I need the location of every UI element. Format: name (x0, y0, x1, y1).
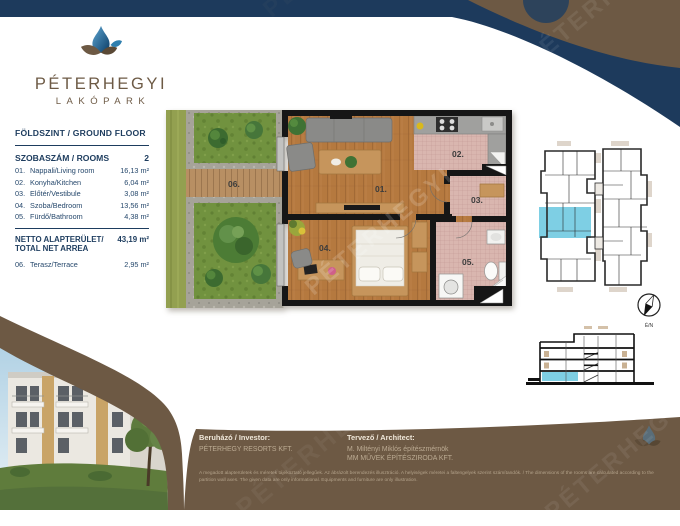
room-name: Szoba/Bedroom (30, 202, 120, 210)
net-area-value: 43,19 m² (117, 235, 149, 254)
ground-line (526, 382, 654, 385)
bathroom-label: 05. (462, 257, 474, 267)
waterdrop-logo-icon (77, 24, 125, 66)
room-row: 03. Előtér/Vestibule 3,08 m² (15, 190, 149, 198)
room-info-panel: FÖLDSZINT / GROUND FLOOR SZOBASZÁM / ROO… (15, 128, 149, 269)
net-area-label-en: TOTAL NET ARREA (15, 244, 88, 253)
terrace-door-sill (277, 137, 284, 171)
architect-name: M. Miltényi Miklós építészmérnök MM MŰVE… (347, 445, 453, 463)
kitchen-label: 02. (452, 149, 464, 159)
rooms-count-value: 2 (144, 153, 149, 163)
living-label: 01. (375, 184, 387, 194)
terrace-row: 06. Terasz/Terrace 2,95 m² (15, 261, 149, 269)
bottom-info-band (184, 417, 680, 510)
room-name: Fürdő/Bathroom (30, 213, 124, 221)
section-highlight (542, 372, 578, 381)
architect-block: Tervező / Architect: M. Miltényi Miklós … (347, 433, 453, 463)
room-name: Terasz/Terrace (30, 261, 124, 269)
disclaimer-text: A megadott alapterületek és méretek tájé… (199, 471, 667, 485)
room-area: 13,56 m² (120, 202, 149, 210)
brand-logo: PÉTERHEGYI LAKÓPARK (28, 24, 174, 107)
footer-drop-watermark-icon (632, 424, 666, 454)
room-number: 02. (15, 179, 30, 187)
bottom-swoosh-band (0, 316, 184, 510)
room-number: 04. (15, 202, 30, 210)
vestibule-label: 03. (471, 195, 483, 205)
room-number: 01. (15, 167, 30, 175)
divider (15, 145, 149, 146)
room-row: 05. Fürdő/Bathroom 4,38 m² (15, 213, 149, 221)
architect-label: Tervező / Architect: (347, 433, 453, 442)
room-name: Konyha/Kitchen (30, 179, 124, 187)
room-row: 02. Konyha/Kitchen 6,04 m² (15, 179, 149, 187)
rooms-count-label: SZOBASZÁM / ROOMS (15, 153, 109, 163)
investor-label: Beruházó / Investor: (199, 433, 293, 442)
room-area: 6,04 m² (124, 179, 149, 187)
room-area: 4,38 m² (124, 213, 149, 221)
net-area-label: NETTO ALAPTERÜLET/ TOTAL NET ARREA (15, 235, 104, 254)
room-area: 2,95 m² (124, 261, 149, 269)
bush (213, 217, 259, 263)
stair-links (595, 183, 603, 249)
room-area: 3,08 m² (124, 190, 149, 198)
terrace-garden: 06. (166, 110, 284, 308)
room-number: 05. (15, 213, 30, 221)
floor-header: FÖLDSZINT / GROUND FLOOR (15, 128, 149, 138)
building-key-plan (533, 141, 653, 295)
net-area-row: NETTO ALAPTERÜLET/ TOTAL NET ARREA 43,19… (15, 235, 149, 254)
room-name: Előtér/Vestibule (30, 190, 124, 198)
room-number: 06. (15, 261, 30, 269)
right-wing-outline (603, 149, 647, 285)
brand-subname: LAKÓPARK (28, 96, 174, 107)
architect-name-line2: MM MŰVEK ÉPÍTÉSZIRODA KFT. (347, 455, 453, 462)
terrace-label: 06. (228, 179, 240, 189)
divider (15, 228, 149, 229)
brand-name: PÉTERHEGYI (28, 75, 174, 94)
investor-name: PÉTERHEGY RESORTS KFT. (199, 445, 293, 454)
room-name: Nappali/Living room (30, 167, 120, 175)
architect-name-line1: M. Miltényi Miklós építészmérnök (347, 446, 448, 453)
bedroom-label: 04. (319, 243, 331, 253)
terrace-door-sill (277, 224, 284, 286)
rooms-count-row: SZOBASZÁM / ROOMS 2 (15, 153, 149, 163)
room-area: 16,13 m² (120, 167, 149, 175)
room-row: 01. Nappali/Living room 16,13 m² (15, 167, 149, 175)
entry-canopy (528, 378, 540, 381)
net-area-label-hu: NETTO ALAPTERÜLET/ (15, 235, 104, 244)
room-row: 04. Szoba/Bedroom 13,56 m² (15, 202, 149, 210)
apartment-floorplan: 06. (166, 110, 516, 308)
investor-block: Beruházó / Investor: PÉTERHEGY RESORTS K… (199, 433, 293, 454)
room-number: 03. (15, 190, 30, 198)
building-section (526, 320, 654, 394)
